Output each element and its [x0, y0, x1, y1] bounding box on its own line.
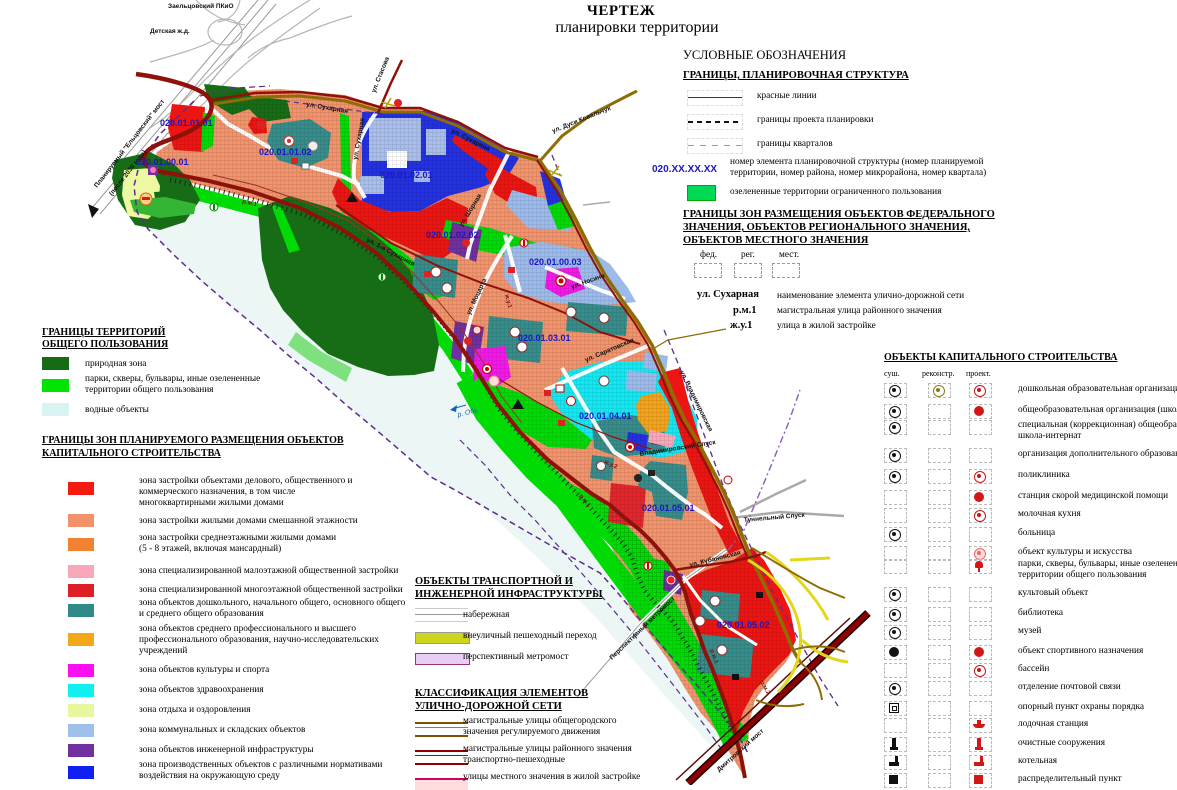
- svg-text:020.XX.XX.XX: 020.XX.XX.XX: [652, 164, 717, 175]
- svg-text:020.01.02.01: 020.01.02.01: [380, 170, 433, 180]
- svg-text:020.01.00.03: 020.01.00.03: [529, 257, 582, 267]
- svg-text:ул. Дуси Ковальчук: ул. Дуси Ковальчук: [551, 105, 612, 135]
- svg-text:020.01.05.02: 020.01.05.02: [717, 620, 770, 630]
- svg-text:Заельцовский ПКиО: Заельцовский ПКиО: [168, 2, 234, 10]
- svg-text:020.01.04.01: 020.01.04.01: [579, 411, 632, 421]
- svg-text:020.01.05.01: 020.01.05.01: [642, 503, 695, 513]
- svg-text:020.01.03.01: 020.01.03.01: [518, 333, 571, 343]
- svg-text:020.01.02.02.: 020.01.02.02.: [426, 230, 481, 240]
- svg-text:020.01.01.02: 020.01.01.02: [259, 147, 312, 157]
- svg-text:020.01.00.01: 020.01.00.01: [136, 157, 189, 167]
- svg-text:Детская ж.д.: Детская ж.д.: [150, 28, 190, 35]
- svg-text:020.01.01.01: 020.01.01.01: [160, 118, 213, 128]
